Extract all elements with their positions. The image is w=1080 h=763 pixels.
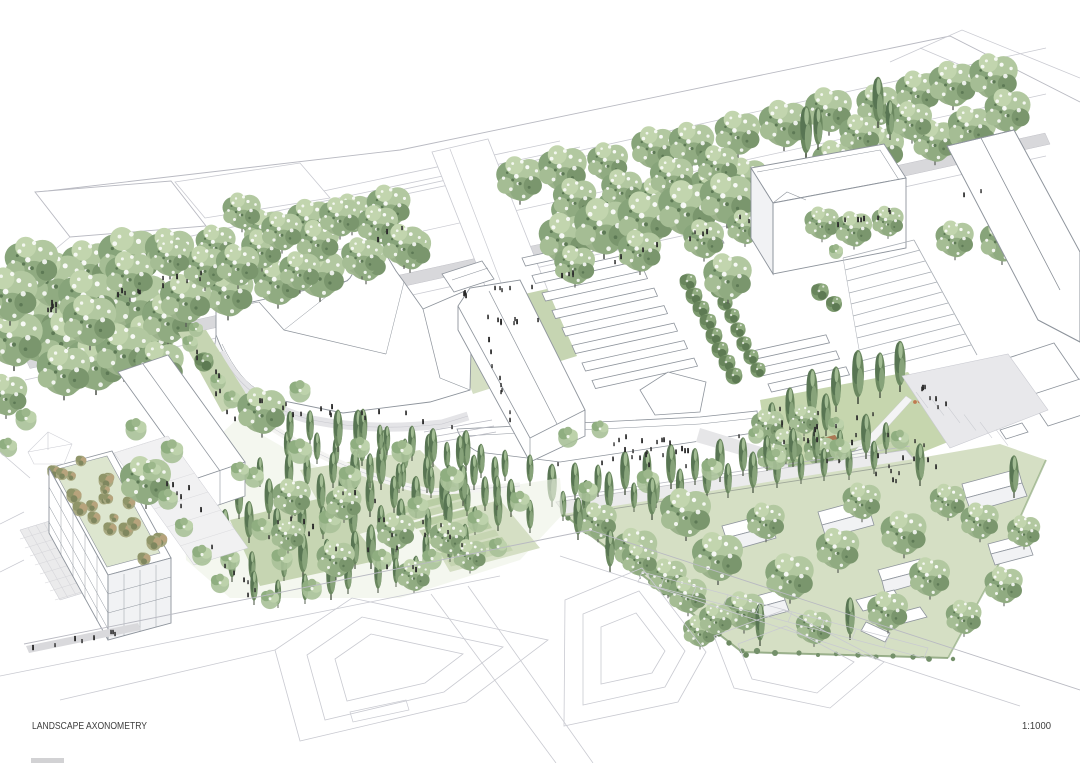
svg-text:LANDSCAPE AXONOMETRY: LANDSCAPE AXONOMETRY [32, 720, 147, 732]
svg-text:1:1000: 1:1000 [1022, 720, 1051, 732]
